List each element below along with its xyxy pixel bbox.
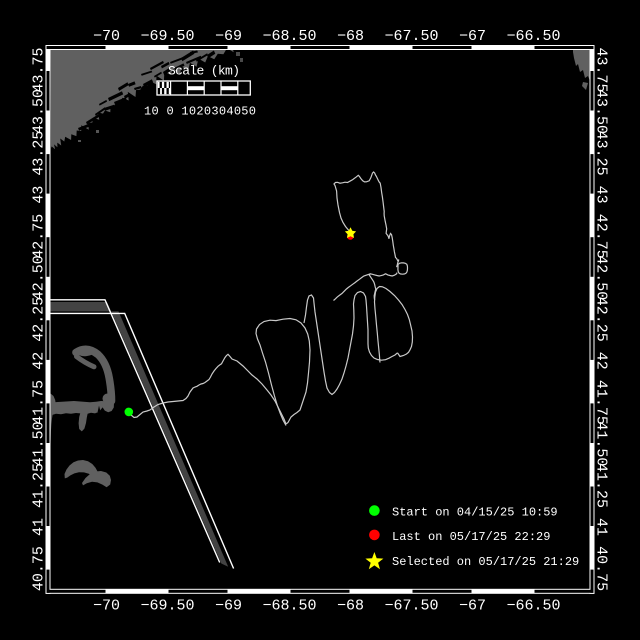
svg-text:−68.50: −68.50 [262, 28, 316, 45]
svg-text:42: 42 [593, 352, 610, 370]
svg-text:−69: −69 [215, 598, 242, 615]
svg-text:42.75: 42.75 [593, 214, 610, 259]
svg-text:42.50: 42.50 [593, 255, 610, 300]
svg-text:41.75: 41.75 [593, 380, 610, 425]
svg-text:43.50: 43.50 [31, 89, 48, 134]
svg-text:Selected on 05/17/25 21:29: Selected on 05/17/25 21:29 [392, 555, 579, 569]
svg-text:41.25: 41.25 [31, 463, 48, 508]
svg-text:Last on 05/17/25 22:29: Last on 05/17/25 22:29 [392, 530, 550, 544]
svg-text:−67.50: −67.50 [384, 598, 438, 615]
svg-text:10 0 1020304050: 10 0 1020304050 [144, 105, 256, 119]
svg-text:43: 43 [31, 186, 48, 204]
svg-text:42.25: 42.25 [31, 297, 48, 342]
svg-text:41.50: 41.50 [31, 421, 48, 466]
svg-text:41.25: 41.25 [593, 463, 610, 508]
svg-text:−70: −70 [93, 598, 120, 615]
svg-text:−68.50: −68.50 [262, 598, 316, 615]
svg-text:−67: −67 [459, 598, 486, 615]
svg-text:40.75: 40.75 [593, 546, 610, 591]
svg-text:43.25: 43.25 [31, 131, 48, 176]
svg-text:42.50: 42.50 [31, 255, 48, 300]
svg-text:42.75: 42.75 [31, 214, 48, 259]
svg-text:43.25: 43.25 [593, 131, 610, 176]
svg-text:43: 43 [593, 186, 610, 204]
svg-text:−66.50: −66.50 [506, 598, 560, 615]
svg-text:Scale (km): Scale (km) [168, 64, 240, 79]
svg-text:−69.50: −69.50 [140, 598, 194, 615]
svg-text:−69: −69 [215, 28, 242, 45]
svg-text:40.75: 40.75 [31, 546, 48, 591]
svg-text:43.50: 43.50 [593, 89, 610, 134]
svg-text:41: 41 [593, 518, 610, 536]
svg-text:43.75: 43.75 [593, 47, 610, 92]
svg-text:41: 41 [31, 518, 48, 536]
svg-text:42.25: 42.25 [593, 297, 610, 342]
svg-text:41.75: 41.75 [31, 380, 48, 425]
svg-text:Start on 04/15/25 10:59: Start on 04/15/25 10:59 [392, 505, 558, 519]
svg-text:−68: −68 [337, 598, 364, 615]
svg-text:−69.50: −69.50 [140, 28, 194, 45]
svg-text:41.50: 41.50 [593, 421, 610, 466]
svg-text:−68: −68 [337, 28, 364, 45]
svg-text:42: 42 [31, 352, 48, 370]
svg-text:−66.50: −66.50 [506, 28, 560, 45]
svg-text:−70: −70 [93, 28, 120, 45]
svg-text:−67.50: −67.50 [384, 28, 438, 45]
svg-text:−67: −67 [459, 28, 486, 45]
svg-text:43.75: 43.75 [31, 47, 48, 92]
